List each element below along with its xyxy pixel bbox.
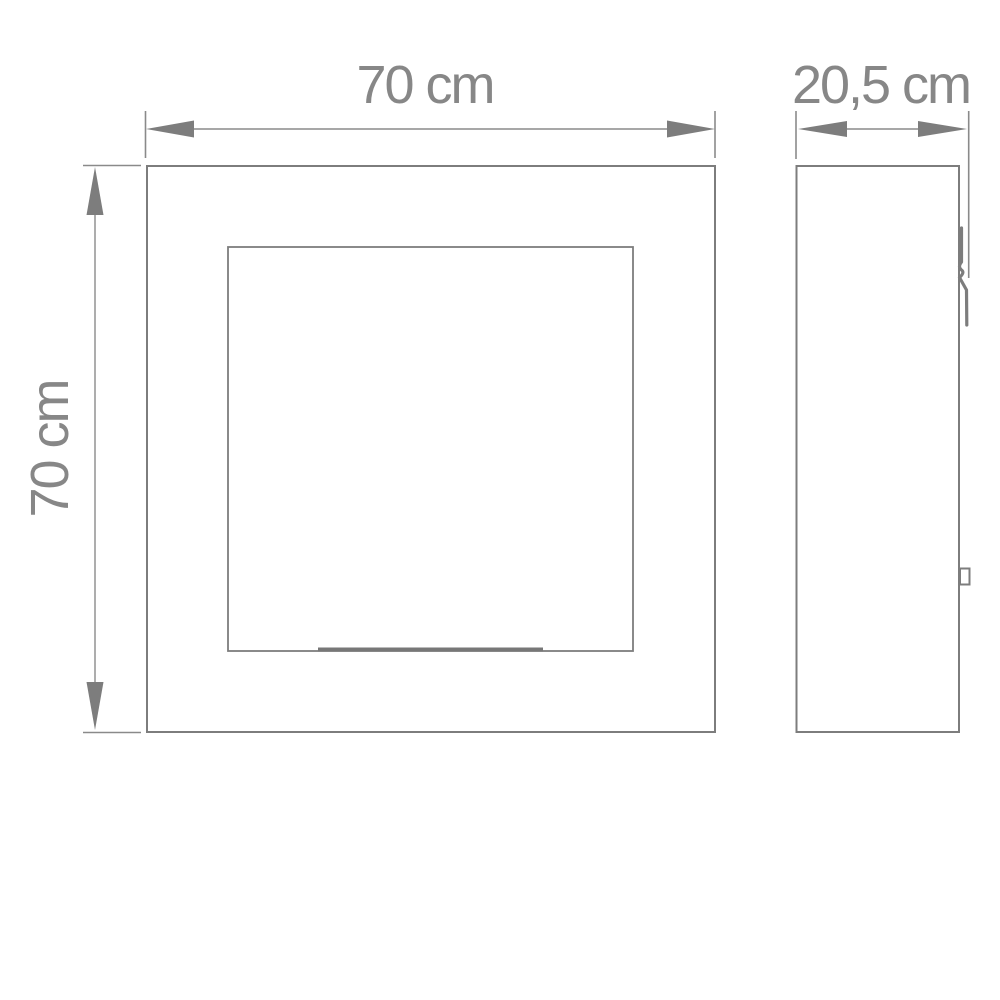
wall-bracket-hook-icon xyxy=(960,228,967,325)
wall-mount-plate xyxy=(960,569,970,585)
width-dimension-label: 70 cm xyxy=(275,58,575,112)
arrowhead-left-icon xyxy=(146,121,194,138)
width-dimension xyxy=(146,111,716,158)
arrowhead-right-icon xyxy=(918,121,967,137)
side-view xyxy=(797,166,970,732)
height-dimension xyxy=(83,166,141,733)
door-panel-outline xyxy=(228,247,633,651)
depth-dimension-label: 20,5 cm xyxy=(731,58,1000,112)
dimension-drawing-canvas xyxy=(0,0,1000,1000)
height-dimension-label: 70 cm xyxy=(23,299,77,599)
arrowhead-left-icon xyxy=(798,121,847,137)
front-view-outline xyxy=(147,166,715,732)
side-view-outline xyxy=(797,166,960,732)
depth-dimension xyxy=(796,111,969,278)
arrowhead-up-icon xyxy=(87,167,104,215)
dimension-drawing: 70 cm 20,5 cm 70 cm xyxy=(0,0,1000,1000)
arrowhead-down-icon xyxy=(87,682,104,730)
front-view xyxy=(147,166,715,732)
arrowhead-right-icon xyxy=(667,121,715,138)
